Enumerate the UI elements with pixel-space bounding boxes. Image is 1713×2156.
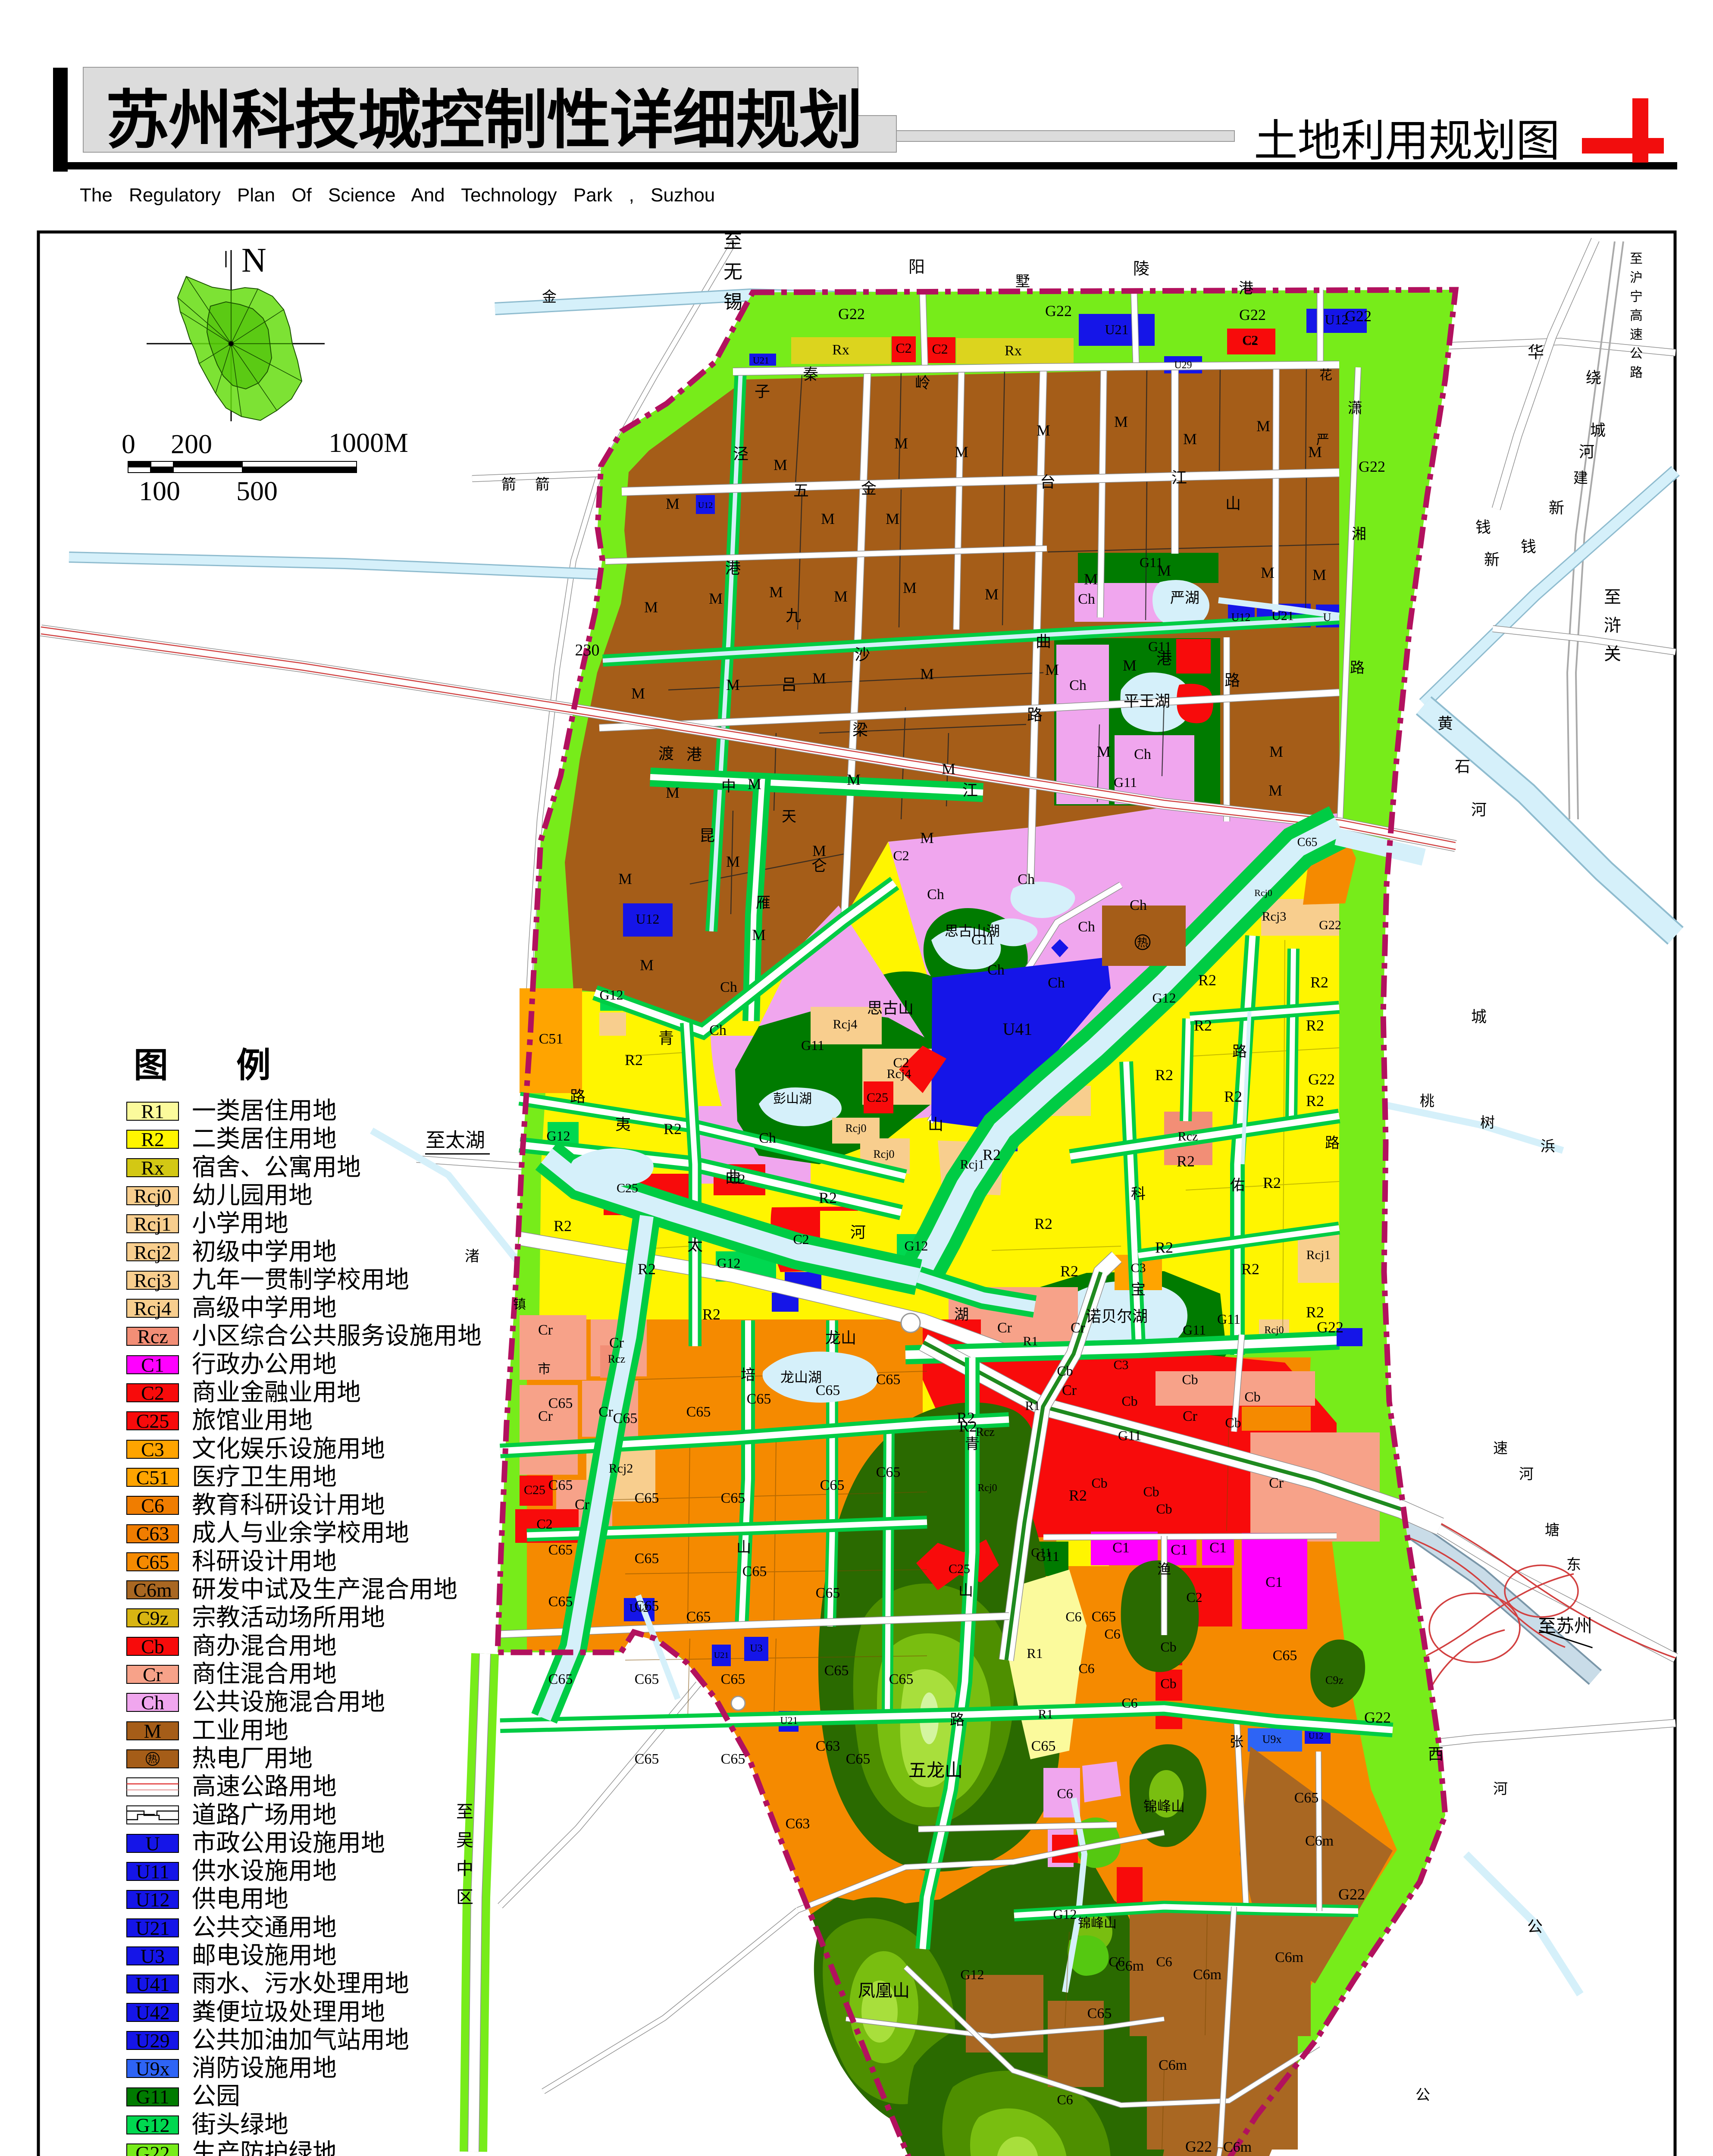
svg-text:M: M [1261,564,1275,581]
svg-text:M: M [894,435,908,452]
svg-text:U21: U21 [780,1715,798,1727]
svg-text:Cb: Cb [141,1636,164,1658]
svg-text:港: 港 [1239,281,1253,297]
svg-text:M: M [812,670,826,687]
svg-text:供水设施用地: 供水设施用地 [192,1858,337,1885]
svg-text:粪便垃圾处理用地: 粪便垃圾处理用地 [192,1999,385,2026]
svg-text:C65: C65 [1087,2006,1112,2021]
svg-text:建: 建 [1573,470,1588,486]
svg-text:岭: 岭 [915,374,930,392]
svg-text:路: 路 [1325,1135,1340,1151]
svg-text:G12: G12 [599,987,623,1003]
svg-text:C6: C6 [1057,2092,1073,2107]
svg-text:C65: C65 [635,1671,659,1687]
svg-text:宗教活动场所用地: 宗教活动场所用地 [192,1604,385,1631]
svg-text:C65: C65 [548,1542,573,1558]
svg-text:新: 新 [1484,551,1500,568]
svg-text:G11: G11 [801,1037,824,1053]
svg-text:钱: 钱 [1521,538,1536,555]
svg-text:仑: 仑 [811,857,827,874]
svg-text:工业用地: 工业用地 [192,1717,288,1744]
svg-text:C6: C6 [141,1495,164,1517]
svg-text:G22: G22 [1185,2138,1212,2155]
svg-text:青: 青 [658,1030,674,1047]
svg-text:泾: 泾 [733,445,748,463]
svg-text:C65: C65 [635,1551,659,1567]
svg-text:Rcj1: Rcj1 [960,1157,985,1172]
svg-text:图: 图 [134,1047,168,1085]
svg-text:城: 城 [1590,422,1606,439]
svg-text:龙山: 龙山 [825,1329,856,1347]
svg-text:至: 至 [723,231,742,252]
svg-text:C51: C51 [539,1031,564,1047]
svg-text:行政办公用地: 行政办公用地 [192,1351,337,1378]
svg-text:M: M [1037,422,1050,439]
svg-text:消防设施用地: 消防设施用地 [192,2055,337,2082]
svg-text:U29: U29 [135,2030,169,2052]
svg-text:天: 天 [782,809,796,825]
svg-text:Cr: Cr [1062,1382,1077,1398]
svg-text:山: 山 [958,1583,973,1599]
svg-text:M: M [752,926,766,943]
svg-text:C65: C65 [846,1751,871,1767]
svg-text:Rcz: Rcz [608,1353,625,1365]
svg-text:昆: 昆 [699,827,715,844]
svg-text:C25: C25 [617,1181,638,1195]
svg-text:R2: R2 [638,1260,656,1278]
svg-text:M: M [1123,657,1137,674]
svg-text:C51: C51 [136,1467,169,1489]
svg-text:M: M [1084,570,1098,588]
svg-text:路: 路 [1232,1044,1247,1060]
svg-text:花: 花 [1319,368,1332,382]
svg-text:G12: G12 [1053,1906,1077,1922]
svg-text:U9x: U9x [1262,1733,1282,1745]
svg-text:雁: 雁 [756,895,770,911]
svg-text:路: 路 [570,1088,586,1105]
svg-text:M: M [1256,417,1270,435]
svg-text:G22: G22 [1045,302,1072,320]
svg-text:M: M [1045,661,1059,678]
svg-text:小学用地: 小学用地 [192,1210,288,1237]
svg-text:C65: C65 [721,1751,745,1767]
svg-text:C65: C65 [686,1609,711,1625]
svg-text:Ch: Ch [1078,919,1095,935]
svg-text:Rcj4: Rcj4 [833,1017,858,1031]
svg-text:C65: C65 [136,1551,169,1573]
svg-text:C65: C65 [889,1671,914,1687]
svg-text:M: M [1268,782,1282,799]
svg-text:G11: G11 [136,2086,169,2108]
svg-text:R1: R1 [1023,1334,1038,1348]
svg-text:Rcj0: Rcj0 [1264,1325,1284,1336]
svg-text:R1: R1 [1027,1645,1043,1661]
svg-text:诺贝尔湖: 诺贝尔湖 [1086,1308,1148,1325]
svg-text:G22: G22 [1239,306,1266,323]
svg-text:宿舍、公寓用地: 宿舍、公寓用地 [192,1154,361,1181]
svg-text:吕: 吕 [781,676,797,693]
svg-text:路: 路 [950,1712,965,1728]
svg-text:商业金融业用地: 商业金融业用地 [192,1379,361,1406]
svg-text:M: M [903,579,917,596]
svg-text:G22: G22 [1364,1709,1391,1726]
svg-text:华: 华 [1528,344,1544,362]
svg-text:C65: C65 [721,1490,745,1506]
svg-text:培: 培 [741,1367,755,1383]
svg-text:M: M [769,583,783,601]
svg-text:Cr: Cr [1183,1408,1198,1424]
svg-text:M: M [942,760,955,777]
svg-text:R2: R2 [819,1189,837,1206]
svg-text:街头绿地: 街头绿地 [192,2112,288,2138]
svg-text:C65: C65 [548,1671,573,1687]
svg-text:G12: G12 [717,1255,740,1271]
svg-text:塘: 塘 [1545,1522,1560,1539]
svg-text:C1: C1 [1209,1540,1227,1556]
svg-text:金: 金 [542,289,557,305]
svg-text:C6: C6 [1104,1626,1120,1642]
svg-text:R2: R2 [664,1120,682,1138]
svg-text:河: 河 [1493,1781,1508,1797]
svg-text:R2: R2 [1241,1260,1259,1278]
svg-text:C2: C2 [1243,334,1258,347]
svg-text:M: M [985,586,999,603]
svg-text:Ch: Ch [141,1692,164,1714]
svg-text:C6: C6 [1121,1695,1137,1711]
svg-text:黄: 黄 [1437,715,1453,732]
svg-text:渔: 渔 [1157,1561,1171,1577]
svg-text:R2: R2 [983,1146,1001,1163]
svg-text:R2: R2 [1060,1263,1078,1280]
svg-text:区: 区 [456,1887,473,1907]
svg-text:梁: 梁 [852,721,868,739]
svg-text:R1: R1 [1038,1707,1053,1721]
svg-text:M: M [920,829,934,846]
svg-text:至: 至 [456,1802,473,1821]
svg-text:C65: C65 [876,1372,901,1388]
svg-text:宁: 宁 [1630,290,1643,304]
svg-text:G22: G22 [1338,1886,1365,1903]
svg-text:C65: C65 [824,1663,849,1679]
svg-text:M: M [834,588,848,605]
svg-text:R2: R2 [554,1217,572,1235]
svg-text:G11: G11 [1031,1546,1051,1560]
svg-text:Rcj3: Rcj3 [1262,909,1287,924]
svg-text:G11: G11 [1217,1311,1240,1327]
svg-text:M: M [847,771,861,788]
svg-text:Ch: Ch [759,1130,776,1146]
svg-text:至: 至 [1604,587,1621,607]
svg-text:G12: G12 [135,2114,169,2136]
svg-text:市政公用设施用地: 市政公用设施用地 [192,1830,385,1857]
svg-text:C65: C65 [1273,1648,1297,1664]
svg-text:Cr: Cr [1269,1475,1284,1491]
svg-text:C65: C65 [747,1391,771,1407]
svg-text:高速公路用地: 高速公路用地 [192,1774,337,1800]
svg-text:河: 河 [1471,801,1487,818]
svg-text:邮电设施用地: 邮电设施用地 [192,1943,337,1969]
svg-text:港: 港 [1156,650,1172,667]
svg-text:M: M [1183,430,1197,448]
svg-text:树: 树 [1480,1115,1495,1131]
svg-text:至苏州: 至苏州 [1538,1617,1592,1636]
svg-text:锦峰山: 锦峰山 [1143,1799,1185,1814]
svg-text:C2: C2 [893,848,909,863]
svg-text:热: 热 [1137,937,1148,949]
svg-text:G12: G12 [904,1238,928,1253]
svg-text:山: 山 [736,1540,751,1556]
svg-text:C2: C2 [141,1382,164,1404]
svg-text:土地利用规划图: 土地利用规划图 [1254,117,1560,166]
svg-text:C65: C65 [721,1671,745,1687]
svg-text:M: M [709,590,723,607]
svg-text:C65: C65 [820,1477,845,1493]
svg-text:M: M [748,775,761,793]
svg-text:U12: U12 [698,501,713,510]
svg-text:箭: 箭 [501,476,516,493]
svg-text:U21: U21 [753,355,769,366]
svg-text:Cb: Cb [1156,1501,1172,1517]
svg-text:G11: G11 [1140,555,1163,570]
svg-text:U21: U21 [714,1651,729,1660]
svg-text:镇: 镇 [513,1297,526,1312]
svg-text:R2: R2 [1155,1066,1173,1084]
svg-text:陵: 陵 [1133,260,1149,278]
svg-text:石: 石 [1455,758,1470,775]
svg-text:C65: C65 [548,1477,573,1493]
svg-text:Cr: Cr [538,1322,553,1338]
svg-text:Ch: Ch [1048,975,1065,991]
svg-text:M: M [821,510,835,527]
svg-text:U41: U41 [135,1973,169,1995]
svg-text:Rx: Rx [141,1157,164,1179]
svg-text:C1: C1 [1265,1574,1283,1590]
svg-text:新: 新 [1549,499,1564,517]
svg-text:Rcj0: Rcj0 [134,1185,172,1207]
svg-text:供电用地: 供电用地 [192,1886,288,1913]
svg-text:初级中学用地: 初级中学用地 [192,1239,337,1266]
svg-text:G22: G22 [1317,1319,1343,1336]
svg-text:秦: 秦 [803,366,818,383]
svg-text:夷: 夷 [615,1116,631,1133]
svg-text:关: 关 [1604,644,1621,664]
svg-text:C6m: C6m [1115,1958,1144,1974]
svg-text:C65: C65 [742,1564,767,1579]
svg-text:沙: 沙 [855,646,870,663]
svg-text:M: M [631,685,645,702]
svg-text:Cb: Cb [1160,1639,1176,1655]
svg-text:U21: U21 [135,1917,169,1939]
svg-text:平王湖: 平王湖 [1124,693,1170,710]
svg-text:Rcj2: Rcj2 [134,1241,172,1263]
svg-text:M: M [1114,413,1128,430]
svg-text:公: 公 [1415,2087,1430,2103]
svg-text:Cb: Cb [1160,1676,1176,1691]
svg-text:500: 500 [236,476,278,506]
svg-text:C2: C2 [793,1232,809,1247]
svg-text:U41: U41 [1003,1019,1033,1039]
svg-text:热电厂用地: 热电厂用地 [192,1745,313,1772]
svg-text:箭: 箭 [535,476,550,493]
svg-text:C1: C1 [141,1354,164,1376]
svg-text:C25: C25 [949,1562,970,1576]
svg-text:C6m: C6m [1159,2057,1187,2073]
svg-text:R1: R1 [1025,1399,1040,1413]
svg-text:U12: U12 [1231,611,1251,624]
svg-text:Ch: Ch [720,979,737,995]
svg-text:G22: G22 [838,305,865,323]
svg-text:锦峰山: 锦峰山 [1078,1916,1117,1930]
svg-text:R2: R2 [959,1418,977,1435]
svg-text:C6m: C6m [1193,1967,1221,1983]
svg-text:R1: R1 [141,1100,164,1122]
svg-text:G11: G11 [1114,774,1137,790]
svg-text:0: 0 [122,429,135,459]
svg-text:C2: C2 [536,1516,552,1532]
svg-text:桃: 桃 [1420,1093,1434,1109]
svg-text:港: 港 [686,746,702,763]
svg-text:Rcj4: Rcj4 [134,1297,172,1319]
svg-text:至: 至 [1630,252,1643,266]
svg-text:例: 例 [236,1047,271,1085]
svg-text:G11: G11 [1183,1322,1206,1338]
svg-text:公共设施混合用地: 公共设施混合用地 [192,1689,385,1716]
svg-text:U21: U21 [1271,609,1294,623]
svg-text:曲: 曲 [725,1169,741,1186]
svg-text:Rcz: Rcz [137,1326,168,1347]
svg-text:Rcj0: Rcj0 [873,1148,894,1160]
svg-text:U: U [1323,611,1331,624]
svg-text:U: U [145,1833,160,1855]
svg-text:C2: C2 [1186,1589,1202,1605]
svg-text:严: 严 [1316,433,1329,447]
svg-text:Rcz: Rcz [1178,1129,1198,1144]
svg-text:C2: C2 [896,340,911,356]
svg-text:公共加油加气站用地: 公共加油加气站用地 [192,2027,409,2054]
svg-text:C6m: C6m [133,1579,172,1601]
svg-text:C1: C1 [1112,1540,1130,1556]
svg-text:浒: 浒 [1604,616,1621,635]
svg-text:C65: C65 [816,1585,840,1601]
svg-text:C65: C65 [686,1404,711,1420]
svg-text:R2: R2 [1198,971,1216,989]
svg-text:九年一贯制学校用地: 九年一贯制学校用地 [192,1267,409,1294]
svg-text:西: 西 [1428,1745,1444,1763]
svg-text:U12: U12 [1309,1731,1323,1741]
svg-text:公园: 公园 [192,2083,240,2110]
svg-text:Rcj3: Rcj3 [134,1269,172,1291]
svg-text:G22: G22 [1308,1071,1335,1088]
svg-text:M: M [920,665,934,683]
svg-text:M: M [886,510,899,527]
svg-text:M: M [726,853,740,870]
svg-text:子: 子 [755,383,770,400]
svg-text:R2: R2 [1069,1487,1087,1504]
svg-text:M: M [644,599,658,616]
svg-text:锡: 锡 [723,291,742,313]
svg-text:Cr: Cr [598,1404,614,1420]
svg-text:M: M [1097,743,1111,760]
svg-text:中: 中 [721,778,736,795]
svg-text:Ch: Ch [709,1022,727,1038]
svg-text:M: M [726,676,740,693]
svg-text:C65: C65 [876,1464,901,1480]
svg-text:U42: U42 [135,2002,169,2024]
svg-text:五龙山: 五龙山 [908,1761,963,1781]
svg-text:R2: R2 [702,1306,720,1323]
svg-text:C65: C65 [635,1751,659,1767]
svg-text:路: 路 [1027,706,1043,724]
svg-text:M: M [812,842,826,859]
svg-text:R2: R2 [1034,1215,1052,1232]
svg-text:思古山湖: 思古山湖 [945,923,1000,939]
svg-text:C9z: C9z [137,1607,169,1629]
svg-text:U12: U12 [629,1602,649,1614]
svg-text:C6: C6 [1078,1661,1094,1676]
svg-text:200: 200 [171,429,212,459]
svg-text:C6m: C6m [1305,1833,1334,1849]
svg-text:旅馆业用地: 旅馆业用地 [192,1407,313,1434]
svg-text:230: 230 [575,641,600,659]
svg-text:吴: 吴 [456,1830,473,1850]
svg-text:钱: 钱 [1475,519,1491,536]
svg-text:U12: U12 [636,911,659,927]
svg-text:渡: 渡 [658,745,674,762]
svg-text:C6m: C6m [1223,2139,1252,2155]
svg-text:Ch: Ch [1069,677,1087,693]
svg-text:医疗卫生用地: 医疗卫生用地 [192,1464,337,1491]
svg-text:Rcj4: Rcj4 [887,1067,911,1081]
svg-text:二类居住用地: 二类居住用地 [192,1126,337,1153]
svg-text:C6: C6 [1065,1609,1081,1624]
svg-text:Cb: Cb [1244,1389,1260,1404]
svg-text:Cb: Cb [1057,1363,1073,1379]
svg-text:C63: C63 [816,1738,840,1754]
svg-text:M: M [144,1720,162,1742]
svg-text:雨水、污水处理用地: 雨水、污水处理用地 [192,1971,409,1997]
svg-text:Rcj1: Rcj1 [1306,1248,1331,1262]
svg-text:R2: R2 [1177,1153,1195,1170]
svg-text:河: 河 [1519,1467,1534,1482]
svg-text:C25: C25 [524,1483,545,1497]
svg-text:C65: C65 [1294,1790,1319,1806]
svg-text:九: 九 [786,607,801,624]
svg-text:凤凰山: 凤凰山 [858,1981,910,2000]
svg-text:Cr: Cr [538,1408,553,1424]
svg-text:金: 金 [861,480,877,497]
svg-text:公共交通用地: 公共交通用地 [192,1915,337,1941]
svg-text:张: 张 [1230,1734,1243,1749]
svg-text:Ch: Ch [927,887,944,903]
svg-text:C25: C25 [867,1091,888,1105]
svg-text:无: 无 [723,261,742,282]
svg-text:M: M [618,870,632,887]
svg-text:渚: 渚 [465,1249,479,1265]
svg-text:C65: C65 [635,1490,659,1506]
svg-text:路: 路 [1350,660,1365,676]
svg-text:高: 高 [1630,309,1643,323]
svg-text:太: 太 [687,1237,703,1254]
svg-text:R2: R2 [141,1128,164,1150]
svg-text:C6m: C6m [1275,1949,1303,1965]
svg-text:沪: 沪 [1630,271,1643,285]
svg-text:湘: 湘 [1352,526,1366,542]
svg-text:生产防护绿地: 生产防护绿地 [192,2140,337,2156]
svg-text:M: M [1269,743,1283,760]
svg-text:1000M: 1000M [329,427,408,458]
svg-text:G22: G22 [1345,307,1372,325]
svg-text:C65: C65 [1092,1609,1116,1625]
